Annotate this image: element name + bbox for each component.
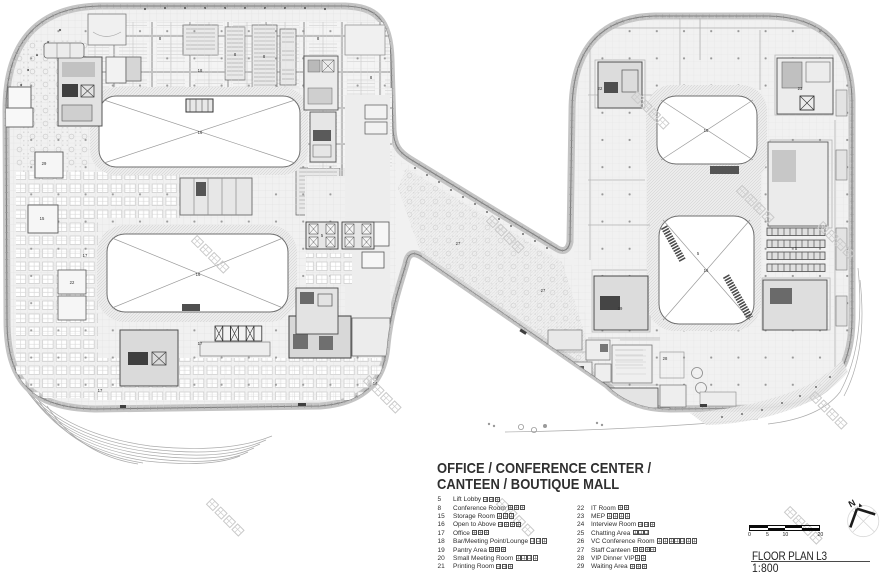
svg-text:17: 17 <box>83 253 88 258</box>
svg-text:22: 22 <box>70 280 75 285</box>
svg-text:16: 16 <box>198 130 203 135</box>
svg-text:23: 23 <box>798 86 803 91</box>
svg-text:15: 15 <box>40 216 45 221</box>
svg-text:18: 18 <box>198 68 203 73</box>
svg-text:16: 16 <box>704 268 709 273</box>
svg-text:16: 16 <box>196 272 201 277</box>
svg-text:17: 17 <box>98 388 103 393</box>
svg-text:29: 29 <box>42 161 47 166</box>
svg-text:28: 28 <box>663 356 668 361</box>
svg-text:17: 17 <box>198 341 203 346</box>
svg-text:29: 29 <box>618 306 623 311</box>
svg-text:22: 22 <box>598 86 603 91</box>
svg-text:27: 27 <box>456 241 461 246</box>
svg-text:27: 27 <box>541 288 546 293</box>
svg-text:16: 16 <box>704 128 709 133</box>
